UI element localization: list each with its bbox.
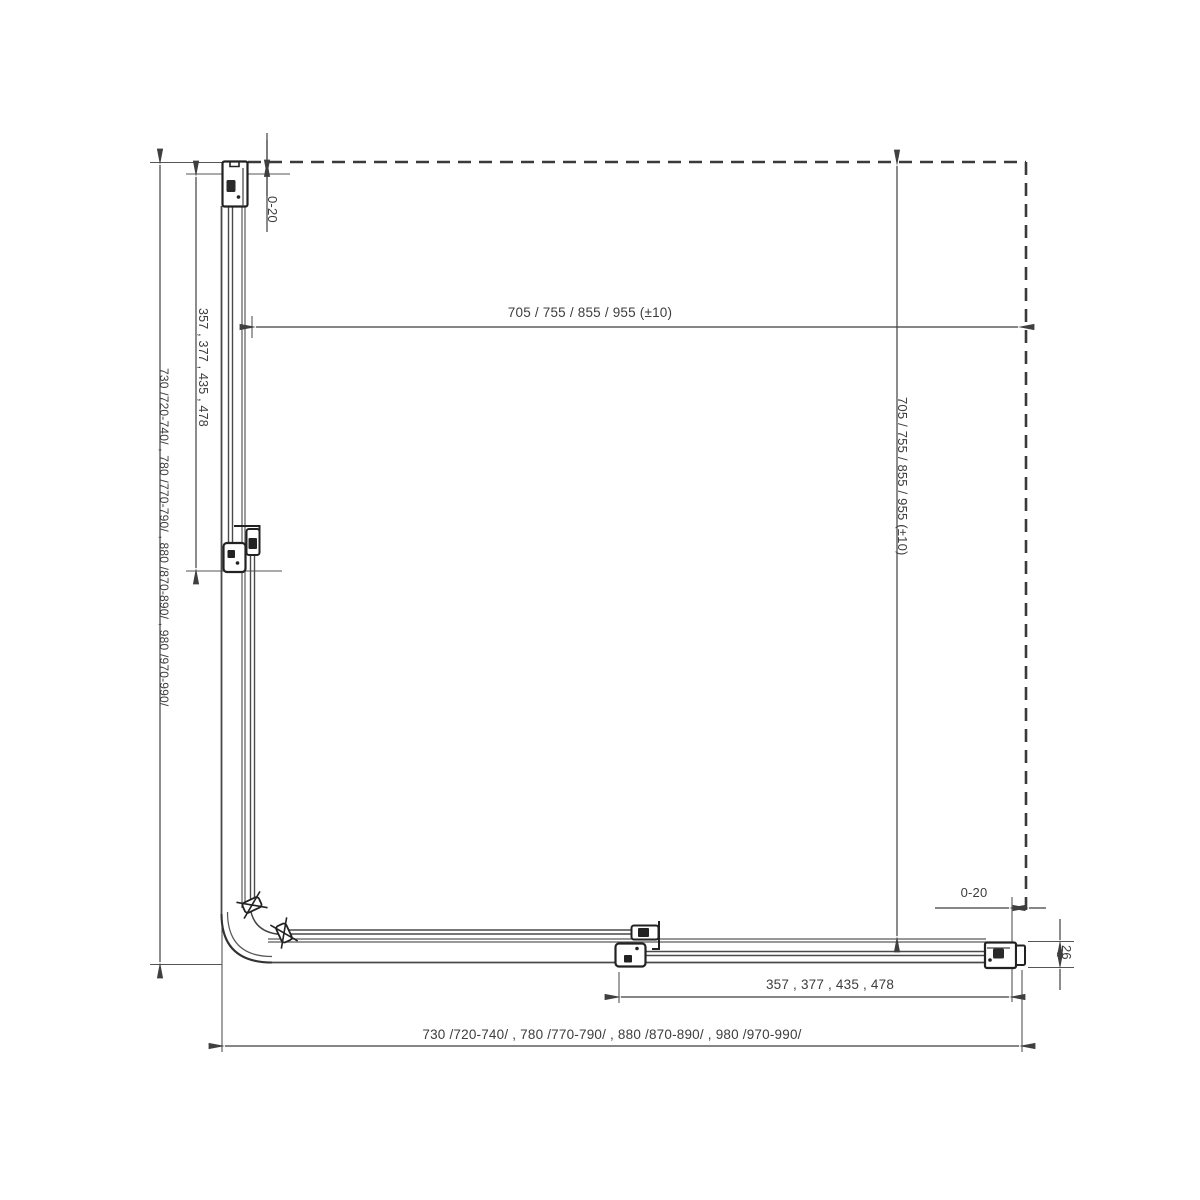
door-holder-screw-icon [638, 928, 649, 937]
dim-bottom-total-label: 730 /720-740/ , 780 /770-790/ , 880 /870… [422, 1028, 801, 1042]
dim-bottom-fixed-label: 357 , 377 , 435 , 478 [766, 978, 894, 992]
dim-left-fixed-label: 357 , 377 , 435 , 478 [196, 308, 210, 427]
profile-screw-icon [993, 949, 1004, 959]
connector-screw-icon [228, 550, 236, 558]
dim-right-height-label: 705 / 755 / 855 / 955 (±10) [895, 397, 909, 556]
dimension-lines [160, 133, 1060, 1046]
dim-top-width-label: 705 / 755 / 855 / 955 (±10) [508, 306, 672, 320]
extension-lines [150, 163, 1074, 1053]
dim-left-total-label: 730 /720-740/ , 780 /770-790/ , 880 /870… [157, 368, 171, 706]
shower-enclosure-plan-drawing: 705 / 755 / 855 / 955 (±10) 705 / 755 / … [0, 0, 1200, 1200]
connector-screw-icon [624, 955, 632, 963]
left-panel-assembly [222, 162, 260, 915]
profile-screw-icon [227, 180, 236, 192]
panel-connector-bottom [616, 921, 660, 967]
wall-profile-top-left [223, 162, 248, 207]
dim-profile-depth-label: 26 [1059, 945, 1073, 960]
door-holder-screw-icon [249, 538, 258, 549]
bottom-panel-assembly [268, 921, 1025, 968]
dim-top-gap-label: 0-20 [265, 196, 279, 223]
drawing-canvas [0, 0, 1200, 1200]
corner-post [222, 891, 298, 962]
dim-right-gap-label: 0-20 [961, 886, 988, 900]
wall-profile-bottom-right [985, 943, 1025, 969]
